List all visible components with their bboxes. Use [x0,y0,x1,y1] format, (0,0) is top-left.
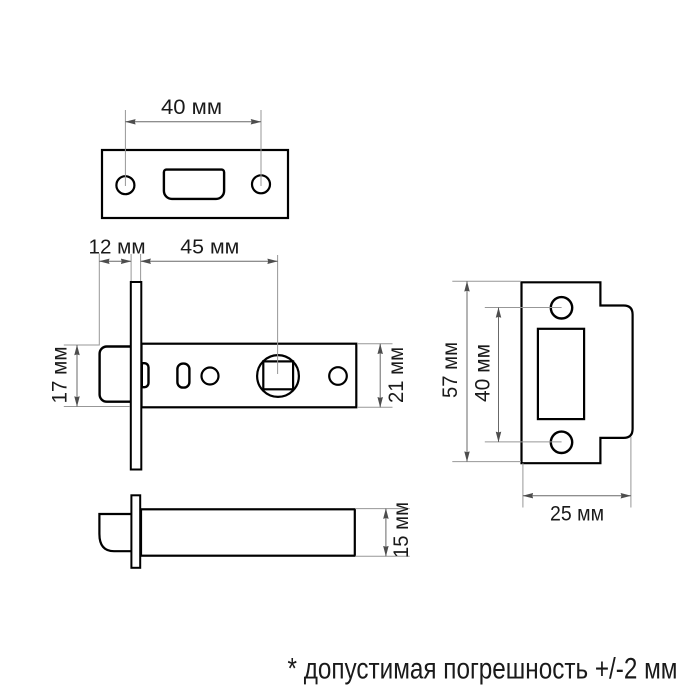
svg-text:12 мм: 12 мм [89,237,146,259]
svg-text:17 мм: 17 мм [48,347,72,404]
svg-text:21 мм: 21 мм [384,347,408,403]
svg-text:40 мм: 40 мм [161,95,222,119]
svg-text:* допустимая погрешность +/-2: * допустимая погрешность +/-2 мм [288,653,678,686]
svg-text:15 мм: 15 мм [389,502,413,558]
svg-text:57 мм: 57 мм [438,342,462,398]
svg-text:25 мм: 25 мм [550,502,604,525]
svg-text:40 мм: 40 мм [471,344,495,402]
svg-text:45 мм: 45 мм [180,237,239,259]
